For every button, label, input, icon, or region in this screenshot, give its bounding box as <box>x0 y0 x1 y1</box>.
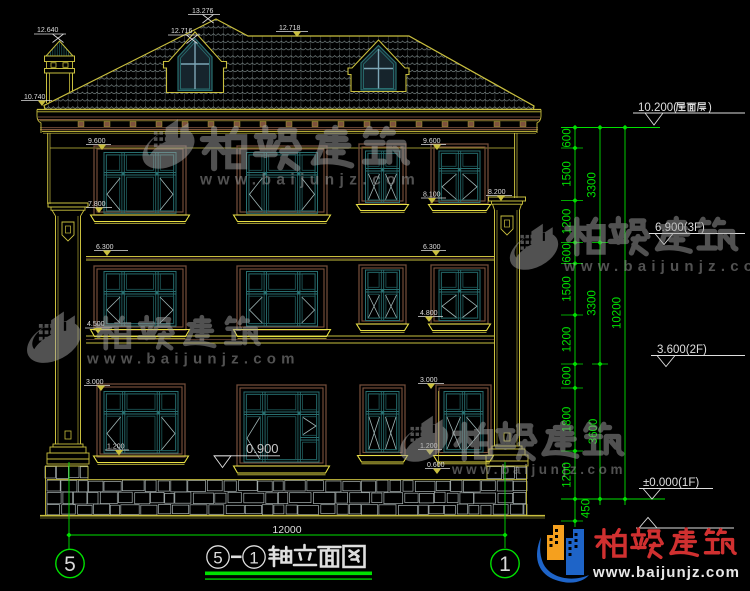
svg-text:www.baijunjz.com: www.baijunjz.com <box>199 172 420 189</box>
svg-text:10.740: 10.740 <box>24 94 46 101</box>
svg-text:7.800: 7.800 <box>88 201 106 208</box>
svg-text:5: 5 <box>213 549 222 568</box>
svg-text:3.000: 3.000 <box>86 379 104 386</box>
svg-text:): ) <box>708 102 712 114</box>
svg-text:8.200: 8.200 <box>488 189 506 196</box>
svg-text:1.200: 1.200 <box>107 444 125 451</box>
svg-text:450: 450 <box>581 499 593 518</box>
svg-text:6.300: 6.300 <box>423 244 441 251</box>
svg-text:13.276: 13.276 <box>192 8 214 15</box>
svg-text:10.200(: 10.200( <box>638 102 677 114</box>
svg-text:9.600: 9.600 <box>423 138 441 145</box>
svg-text:1: 1 <box>499 553 511 576</box>
svg-text:3300: 3300 <box>587 290 599 316</box>
svg-text:600: 600 <box>562 366 574 385</box>
svg-text:1500: 1500 <box>562 276 574 302</box>
svg-text:12000: 12000 <box>272 524 301 536</box>
svg-text:www.baijunjz.com: www.baijunjz.com <box>451 462 626 477</box>
svg-text:0.900: 0.900 <box>246 441 279 456</box>
svg-text:5: 5 <box>64 553 76 576</box>
svg-text:12.718: 12.718 <box>279 25 301 32</box>
svg-text:3300: 3300 <box>587 172 599 198</box>
svg-text:9.600: 9.600 <box>88 138 106 145</box>
svg-text:www.baijunjz.com: www.baijunjz.com <box>592 564 740 581</box>
svg-text:www.baijunjz.com: www.baijunjz.com <box>563 258 750 275</box>
svg-text:12.640: 12.640 <box>37 27 59 34</box>
svg-text:www.baijunjz.com: www.baijunjz.com <box>86 351 300 368</box>
svg-text:±0.000(1F): ±0.000(1F) <box>643 477 699 489</box>
svg-text:12.716: 12.716 <box>171 28 193 35</box>
svg-text:600: 600 <box>562 128 574 147</box>
svg-text:0.600: 0.600 <box>427 462 445 469</box>
svg-text:1: 1 <box>249 549 258 568</box>
svg-text:6.300: 6.300 <box>96 244 114 251</box>
svg-text:10200: 10200 <box>612 297 624 329</box>
svg-text:1200: 1200 <box>562 327 574 353</box>
svg-text:3.000: 3.000 <box>420 377 438 384</box>
svg-text:4.800: 4.800 <box>420 310 438 317</box>
svg-text:1500: 1500 <box>562 161 574 187</box>
svg-text:8.100: 8.100 <box>423 192 441 199</box>
svg-text:3.600(2F): 3.600(2F) <box>657 344 707 356</box>
